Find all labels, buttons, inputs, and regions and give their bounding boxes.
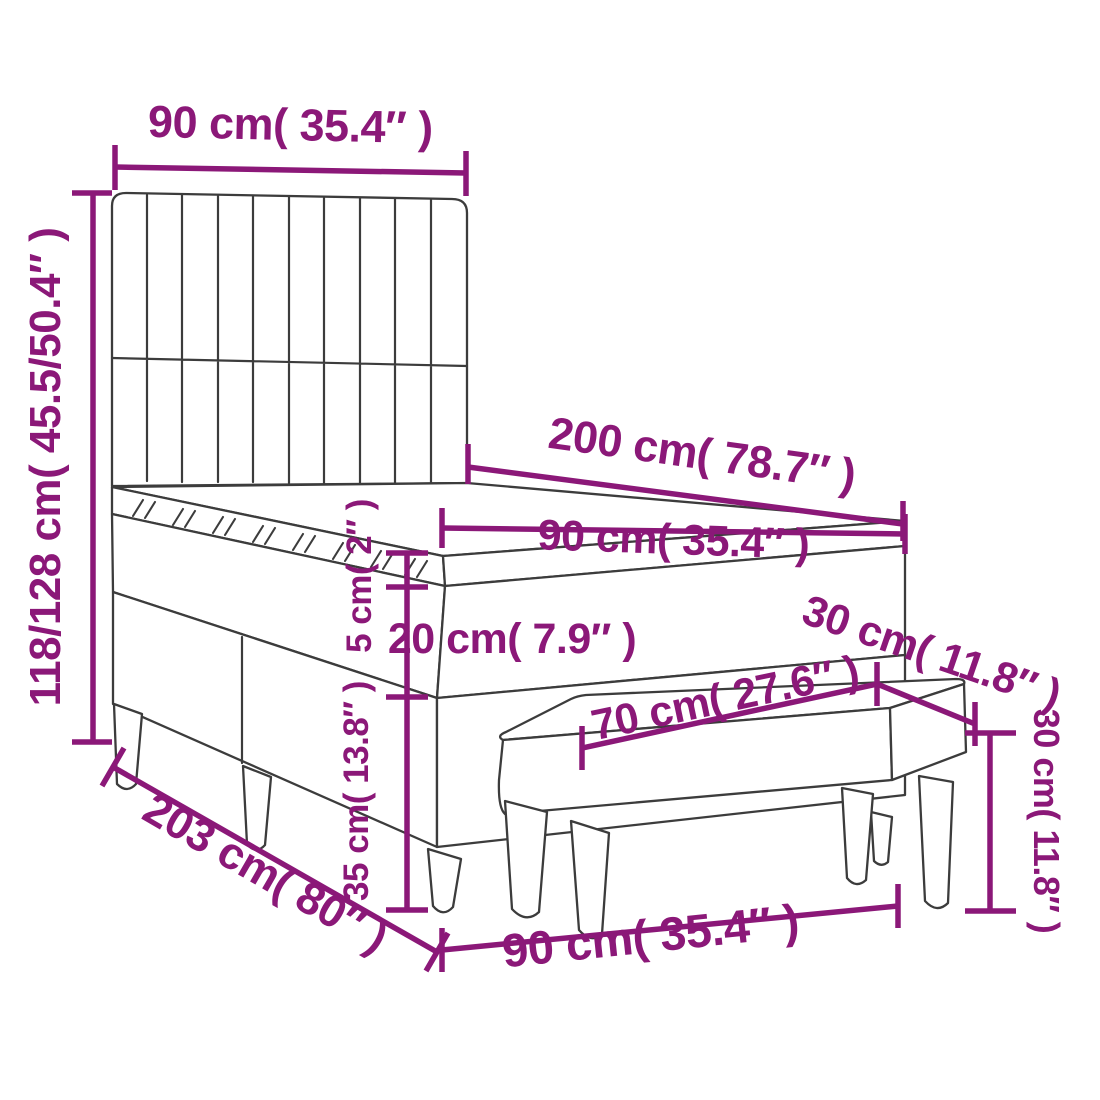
- label-bed-length: 200 cm( 78.7″ ): [545, 407, 858, 501]
- label-bench-height: 30 cm( 11.8″ ): [1026, 709, 1067, 933]
- bench-leg: [919, 776, 953, 908]
- bench-leg: [505, 801, 547, 917]
- label-headboard-width: 90 cm( 35.4″ ): [147, 96, 433, 153]
- bench-leg: [871, 812, 892, 865]
- diagram-canvas: 90 cm( 35.4″ ) 118/128 cm( 45.5/50.4″ ) …: [0, 0, 1100, 1100]
- dim-overall-height: [72, 193, 112, 742]
- label-overall-height: 118/128 cm( 45.5/50.4″ ): [21, 228, 70, 707]
- bed-dimensions-diagram: 90 cm( 35.4″ ) 118/128 cm( 45.5/50.4″ ) …: [0, 0, 1100, 1100]
- label-topper-height: 5 cm( 2″ ): [340, 499, 379, 653]
- label-mattress-height: 20 cm( 7.9″ ): [388, 615, 636, 663]
- label-mattress-width: 90 cm( 35.4″ ): [537, 511, 810, 568]
- dim-bench-height: [965, 733, 1016, 911]
- bench-leg: [842, 788, 873, 884]
- bed-leg: [428, 849, 461, 912]
- label-frame-width: 90 cm( 35.4″ ): [499, 894, 801, 978]
- label-base-height: 35 cm( 13.8″ ): [337, 681, 376, 901]
